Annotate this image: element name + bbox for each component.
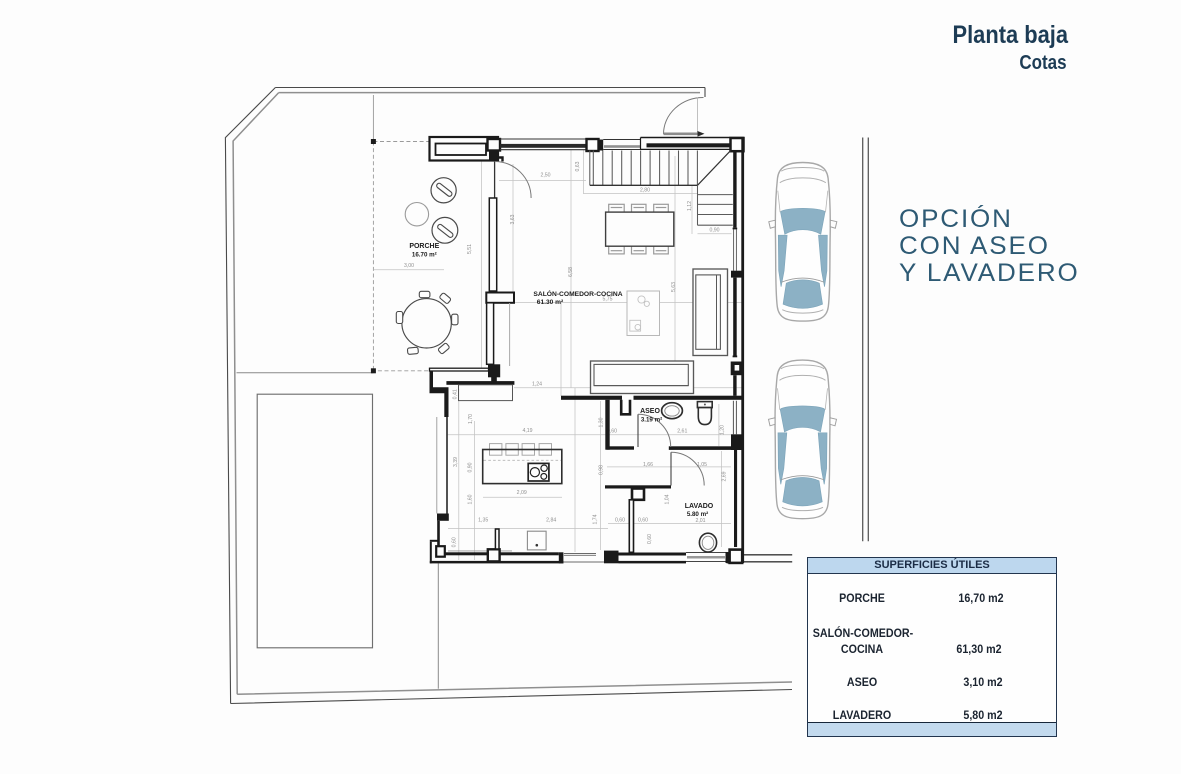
svg-text:4,19: 4,19 xyxy=(522,428,532,434)
svg-text:0,60: 0,60 xyxy=(638,518,648,524)
svg-text:1,70: 1,70 xyxy=(468,414,474,424)
svg-text:0,90: 0,90 xyxy=(709,228,719,234)
svg-text:1,24: 1,24 xyxy=(532,382,542,388)
svg-text:61.30 m²: 61.30 m² xyxy=(537,299,564,306)
svg-text:5.80 m²: 5.80 m² xyxy=(687,511,708,518)
svg-text:6,58: 6,58 xyxy=(568,267,574,277)
svg-text:2,69: 2,69 xyxy=(721,471,727,481)
svg-text:3,63: 3,63 xyxy=(510,214,516,224)
svg-text:5,51: 5,51 xyxy=(467,244,473,254)
svg-text:2,80: 2,80 xyxy=(640,188,650,194)
svg-text:1,35: 1,35 xyxy=(478,517,488,523)
svg-text:5,63: 5,63 xyxy=(671,282,677,292)
svg-text:2,09: 2,09 xyxy=(517,490,527,496)
svg-text:1,74: 1,74 xyxy=(593,514,599,524)
svg-text:1,30: 1,30 xyxy=(598,417,604,427)
svg-text:0,63: 0,63 xyxy=(575,161,581,171)
svg-text:SALÓN-COMEDOR-COCINA: SALÓN-COMEDOR-COCINA xyxy=(533,289,622,298)
svg-text:LAVADO: LAVADO xyxy=(685,503,714,510)
svg-text:2,61: 2,61 xyxy=(677,428,687,434)
svg-text:0,60: 0,60 xyxy=(452,537,458,547)
svg-text:1,04: 1,04 xyxy=(664,494,670,504)
svg-text:3,39: 3,39 xyxy=(453,457,459,467)
svg-text:PORCHE: PORCHE xyxy=(409,243,439,250)
svg-text:2,01: 2,01 xyxy=(695,518,705,524)
svg-text:3,00: 3,00 xyxy=(404,263,414,269)
svg-text:16.70 m²: 16.70 m² xyxy=(412,252,437,259)
svg-text:2,50: 2,50 xyxy=(540,173,550,179)
svg-text:1,60: 1,60 xyxy=(467,494,473,504)
svg-text:0,60: 0,60 xyxy=(615,518,625,524)
svg-text:3.19 m²: 3.19 m² xyxy=(641,417,662,424)
svg-text:ASEO: ASEO xyxy=(640,408,660,415)
svg-text:0,60: 0,60 xyxy=(647,534,653,544)
svg-text:1,66: 1,66 xyxy=(643,462,653,468)
svg-text:0,41: 0,41 xyxy=(452,389,458,399)
svg-text:1,12: 1,12 xyxy=(687,201,693,211)
svg-text:0,90: 0,90 xyxy=(467,462,473,472)
svg-text:0,98: 0,98 xyxy=(598,465,604,475)
svg-text:1,20: 1,20 xyxy=(720,425,726,435)
svg-text:2,84: 2,84 xyxy=(546,517,556,523)
